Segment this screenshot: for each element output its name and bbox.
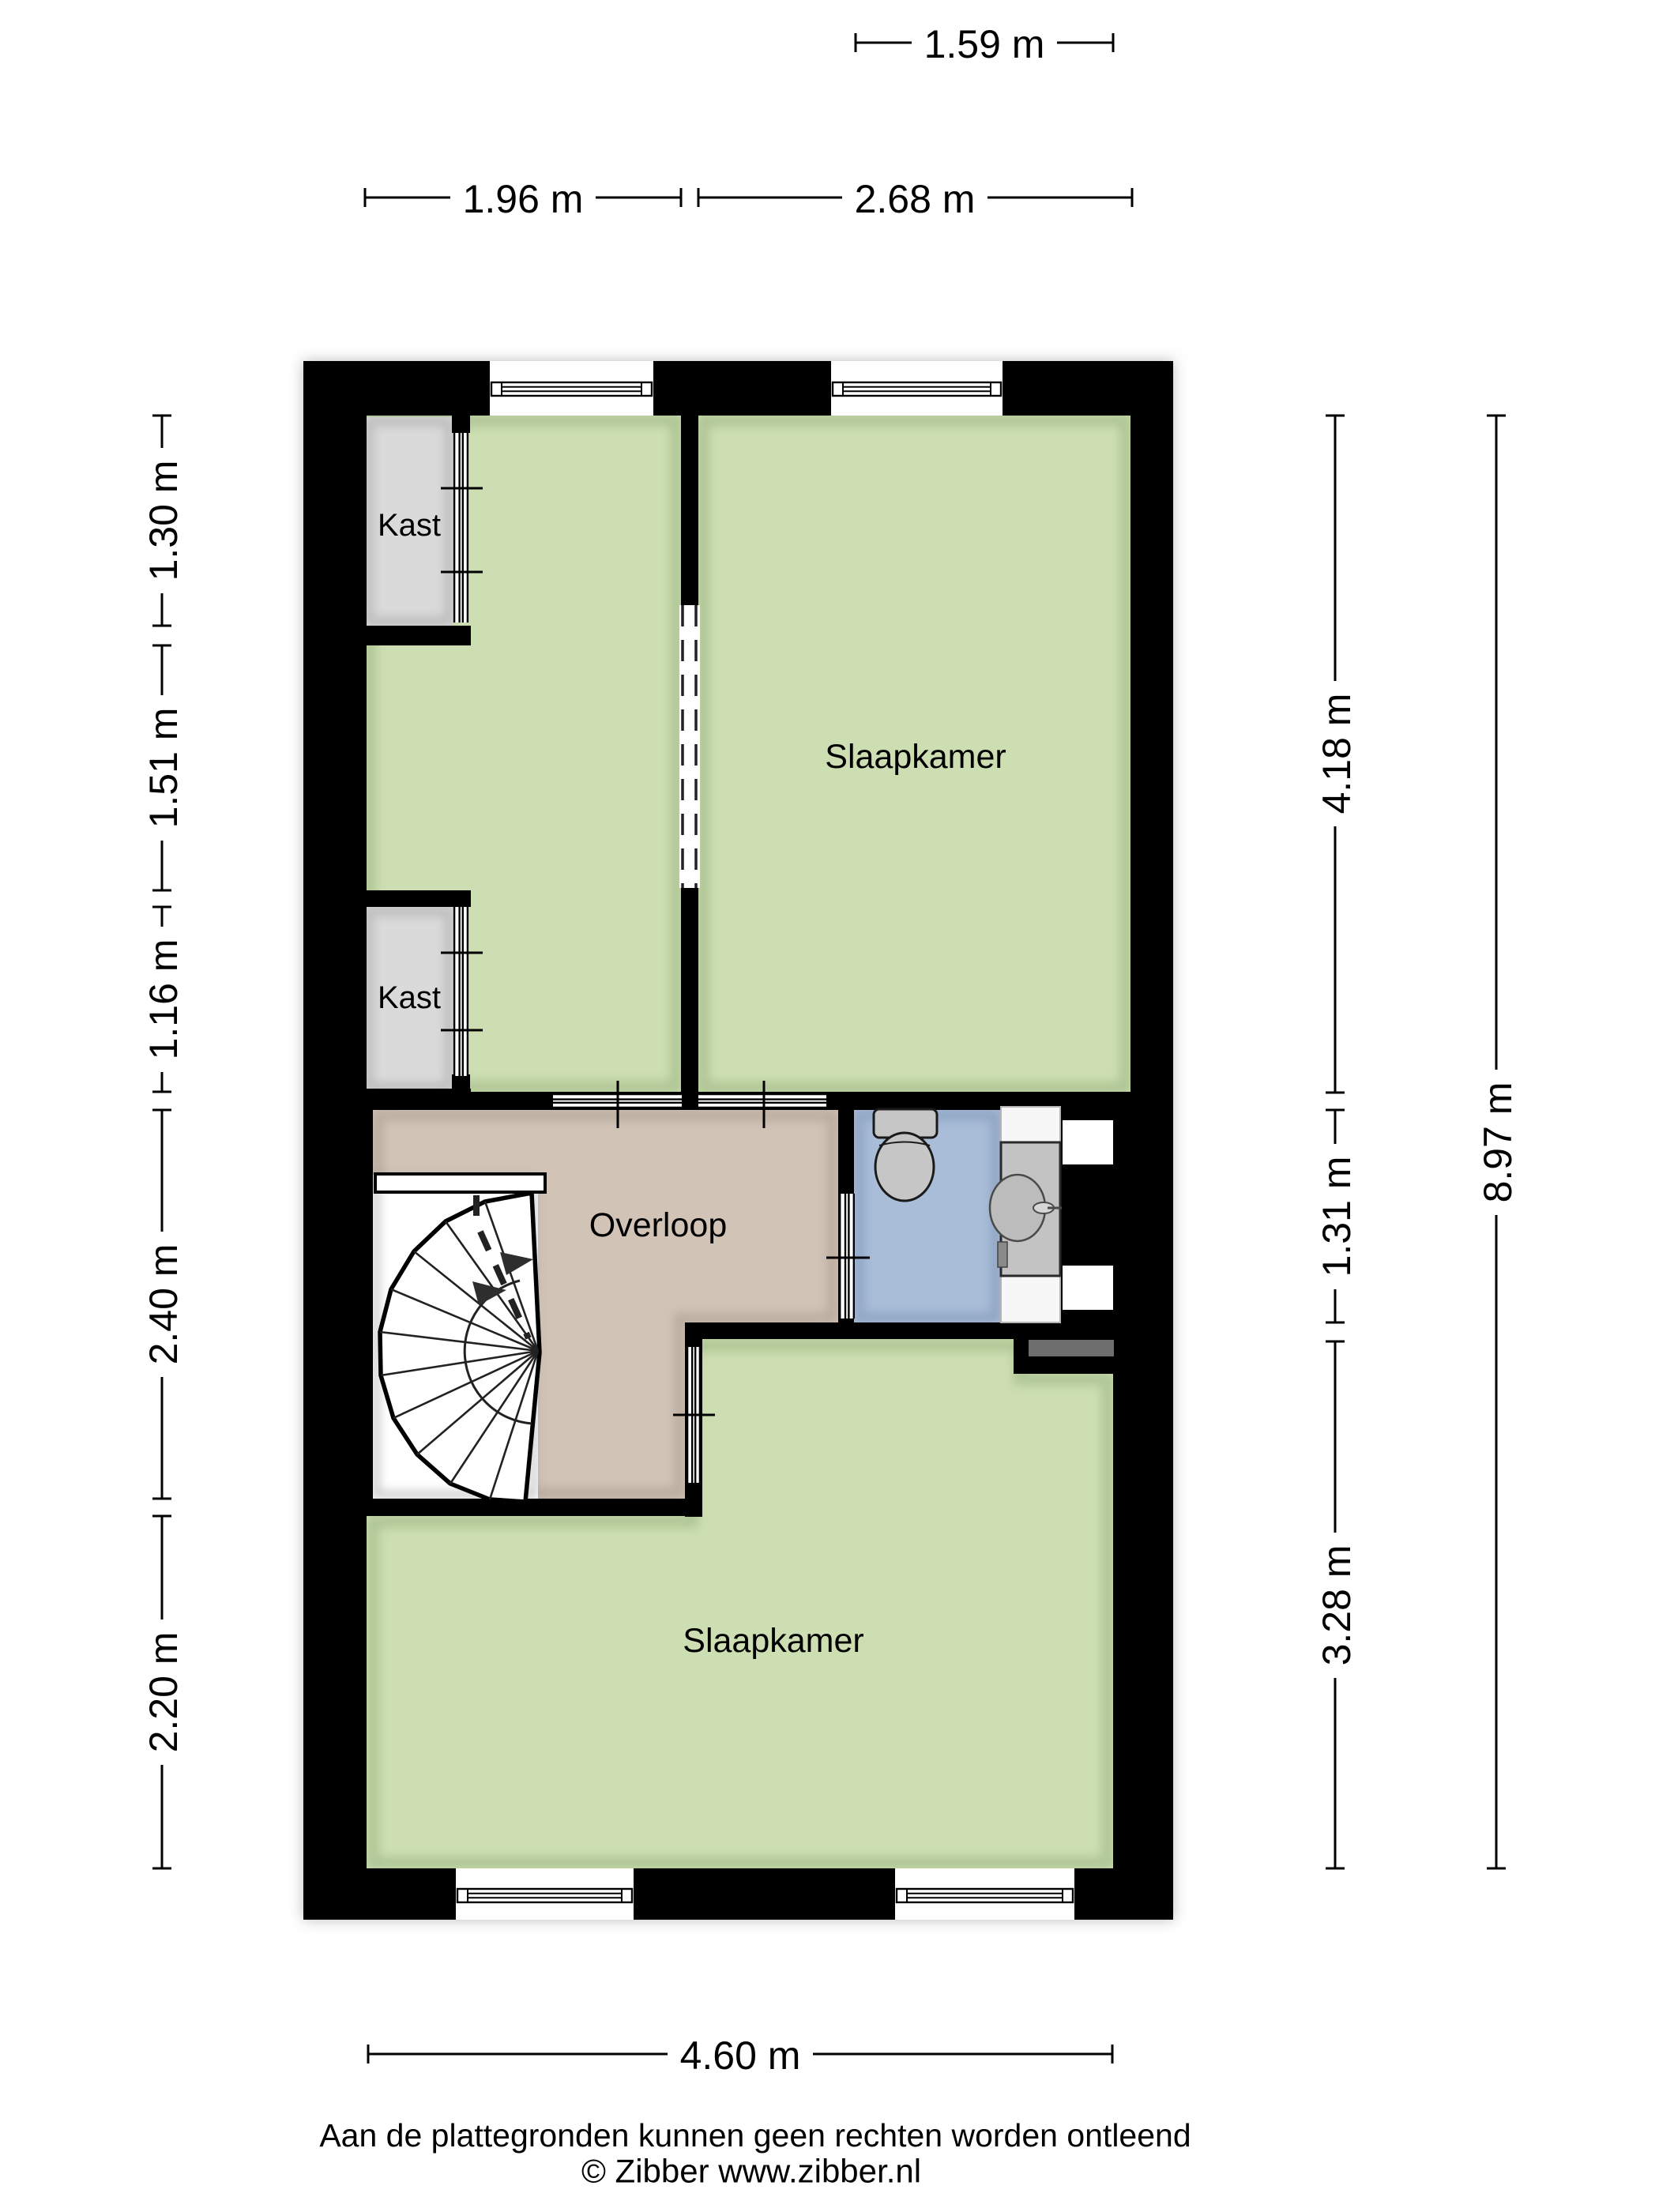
svg-text:Aan de plattegronden kunnen ge: Aan de plattegronden kunnen geen rechten… [319, 2117, 1191, 2154]
svg-text:4.18 m: 4.18 m [1315, 694, 1359, 814]
svg-text:1.31 m: 1.31 m [1315, 1157, 1359, 1277]
svg-text:Slaapkamer: Slaapkamer [683, 1622, 863, 1660]
svg-text:1.51 m: 1.51 m [141, 708, 186, 829]
svg-text:Overloop: Overloop [589, 1206, 727, 1244]
svg-text:Kast: Kast [378, 508, 441, 543]
svg-text:3.28 m: 3.28 m [1315, 1545, 1359, 1666]
svg-text:1.30 m: 1.30 m [141, 461, 186, 581]
svg-text:4.60 m: 4.60 m [680, 2033, 801, 2078]
svg-text:2.68 m: 2.68 m [855, 177, 976, 221]
svg-text:1.96 m: 1.96 m [463, 177, 584, 221]
svg-text:© Zibber www.zibber.nl: © Zibber www.zibber.nl [581, 2153, 921, 2190]
svg-text:1.59 m: 1.59 m [924, 22, 1045, 66]
svg-text:Slaapkamer: Slaapkamer [825, 738, 1006, 776]
svg-text:1.16 m: 1.16 m [141, 939, 186, 1060]
svg-text:2.20 m: 2.20 m [141, 1632, 186, 1753]
svg-text:2.40 m: 2.40 m [141, 1244, 186, 1365]
svg-text:Kast: Kast [378, 980, 441, 1015]
svg-text:8.97 m: 8.97 m [1476, 1082, 1520, 1203]
